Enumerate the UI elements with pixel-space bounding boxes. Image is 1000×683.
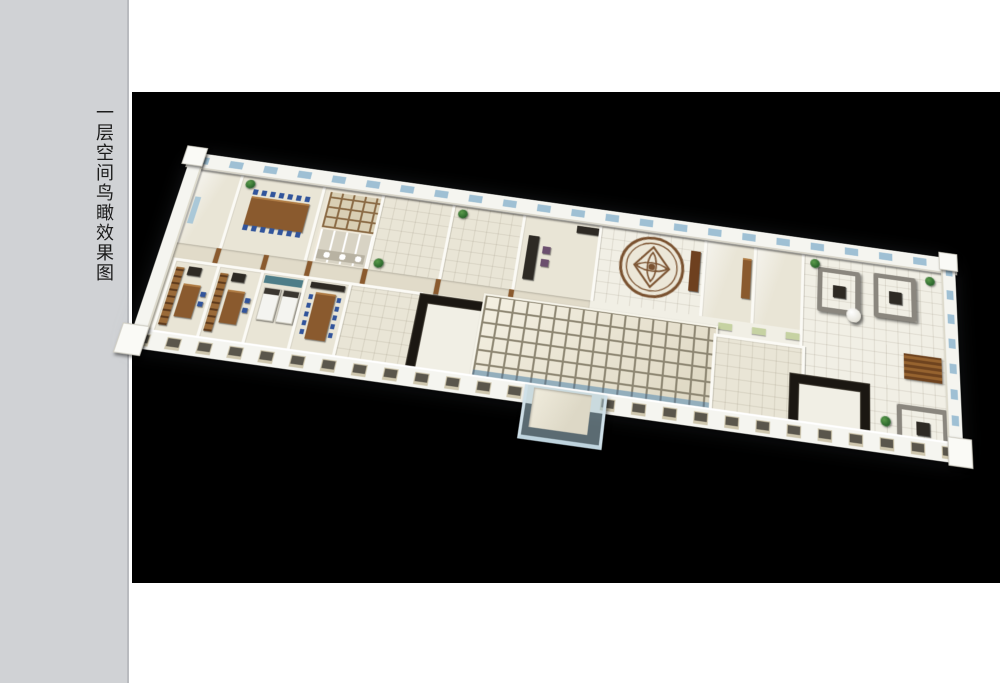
plant-icon <box>925 276 935 286</box>
sofa <box>187 266 203 276</box>
cabinet <box>741 258 752 299</box>
wood-deck <box>904 353 943 384</box>
equipment-cabinet <box>576 226 600 236</box>
plant-icon <box>457 209 468 219</box>
chair <box>241 308 247 314</box>
door-threshold <box>304 261 313 277</box>
door-mat <box>718 322 732 331</box>
render-canvas <box>132 92 1000 583</box>
tall-cabinet <box>688 251 701 292</box>
accent-wall <box>264 275 304 288</box>
plant-icon <box>244 179 256 189</box>
page-title: 一层空间鸟瞰效果图 <box>90 103 116 283</box>
credenza <box>310 282 345 292</box>
coffee-table <box>889 291 902 305</box>
chair <box>244 298 250 304</box>
coffee-table <box>833 285 846 299</box>
chair <box>197 301 204 307</box>
desk <box>218 289 245 324</box>
sofa-group <box>873 273 916 323</box>
door-mat <box>786 332 800 341</box>
floor-medallion <box>613 230 689 305</box>
sofa <box>522 235 540 280</box>
caption-sidebar: 一层空间鸟瞰效果图 <box>0 0 129 683</box>
presentation-page: 一层空间鸟瞰效果图 <box>0 0 1000 683</box>
chair <box>542 246 551 254</box>
plant-icon <box>810 258 820 268</box>
door-threshold <box>433 279 441 295</box>
door-threshold <box>260 255 269 271</box>
door-mat <box>752 327 766 336</box>
chair <box>540 259 549 267</box>
entrance-floor <box>528 387 592 435</box>
door-threshold <box>360 269 368 285</box>
coffee-table <box>916 421 930 436</box>
plant-icon <box>880 415 890 427</box>
sofa <box>231 272 246 282</box>
plant-icon <box>373 258 385 269</box>
corner-tower <box>947 436 973 469</box>
corner-tower <box>938 252 958 272</box>
chair <box>200 292 207 297</box>
entrance-vestibule <box>517 384 608 450</box>
floorplan-building <box>131 155 961 461</box>
door-threshold <box>212 248 222 263</box>
